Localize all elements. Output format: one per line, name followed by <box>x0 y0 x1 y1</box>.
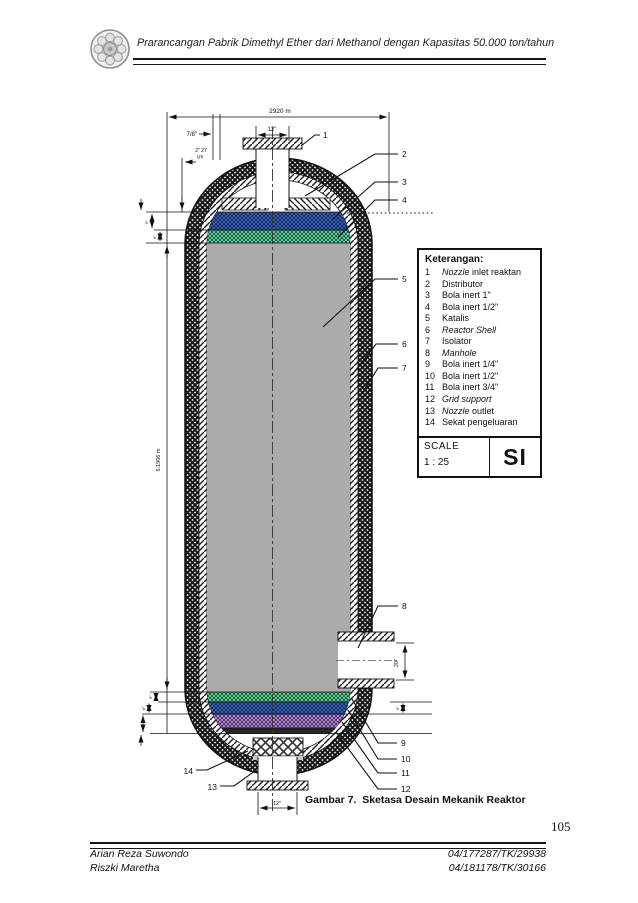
document-page: Prarancangan Pabrik Dimethyl Ether dari … <box>0 0 638 903</box>
callout-7: 7 <box>402 363 407 373</box>
callout-11: 11 <box>401 768 410 778</box>
legend-item: 6Reactor Shell <box>425 325 538 337</box>
legend-item: 13Nozzle outlet <box>425 406 538 418</box>
legend-item: 11Bola inert 3/4" <box>425 382 538 394</box>
svg-text:6": 6" <box>152 235 157 239</box>
svg-text:6": 6" <box>148 695 153 699</box>
sekat-pengeluaran <box>253 738 303 760</box>
callout-8: 8 <box>402 601 407 611</box>
legend-item: 5Katalis <box>425 313 538 325</box>
callout-6: 6 <box>402 339 407 349</box>
legend-box: Keterangan: 1Nozzle inlet reaktan 2Distr… <box>417 248 542 438</box>
callout-4: 4 <box>402 195 407 205</box>
legend-item: 4Bola inert 1/2" <box>425 302 538 314</box>
legend-item: 8Manhole <box>425 348 538 360</box>
legend-item: 14Sekat pengeluaran <box>425 417 538 429</box>
callout-14: 14 <box>184 766 194 776</box>
inert-band-top-halfin <box>207 230 350 243</box>
inert-band-bottom-3quarterin <box>207 714 350 728</box>
dim-head-b: cm <box>197 155 204 161</box>
callout-5: 5 <box>402 274 407 284</box>
legend-item: 9Bola inert 1/4" <box>425 359 538 371</box>
callout-10: 10 <box>401 754 411 764</box>
legend-item: 7Isolator <box>425 336 538 348</box>
callout-2: 2 <box>402 149 407 159</box>
reactor-drawing: 2920 m 12" 7/8" 2" 27 cm 5.1906 m 20" 12… <box>0 0 638 903</box>
inert-band-bottom-halfin <box>207 702 350 714</box>
callout-13: 13 <box>208 782 218 792</box>
scale-value: 1 : 25 <box>424 457 489 468</box>
callout-9: 9 <box>401 738 406 748</box>
legend-item: 10Bola inert 1/2" <box>425 371 538 383</box>
legend-item: 3Bola inert 1" <box>425 290 538 302</box>
scale-box: SCALE 1 : 25 SI <box>417 436 542 478</box>
callout-1: 1 <box>323 130 328 140</box>
svg-text:6": 6" <box>144 220 149 224</box>
svg-text:6": 6" <box>395 706 400 710</box>
svg-text:6": 6" <box>141 706 146 710</box>
dim-nozzle-bottom: 12" <box>273 801 281 807</box>
dim-head-a: 2" 27 <box>195 148 207 154</box>
dim-height: 5.1906 m <box>156 448 162 471</box>
inert-band-top-1in <box>207 212 350 230</box>
legend-title: Keterangan: <box>425 254 538 265</box>
legend-item: 1Nozzle inlet reaktan <box>425 267 538 279</box>
dim-nozzle-top: 12" <box>268 127 277 133</box>
manhole <box>336 632 400 688</box>
scale-label: SCALE <box>424 441 489 452</box>
scale-si: SI <box>489 438 540 476</box>
grid-support <box>207 728 350 734</box>
dim-overall-width: 2920 m <box>269 108 291 115</box>
callout-12: 12 <box>401 784 411 794</box>
catalyst-bed <box>207 243 350 692</box>
dim-shell-thickness: 7/8" <box>187 132 197 138</box>
legend-item: 12Grid support <box>425 394 538 406</box>
legend-item: 2Distributor <box>425 279 538 291</box>
callout-3: 3 <box>402 177 407 187</box>
inert-band-bottom-quarterin <box>207 692 350 702</box>
vessel-internals <box>207 212 350 734</box>
dim-manhole: 20" <box>394 659 400 667</box>
